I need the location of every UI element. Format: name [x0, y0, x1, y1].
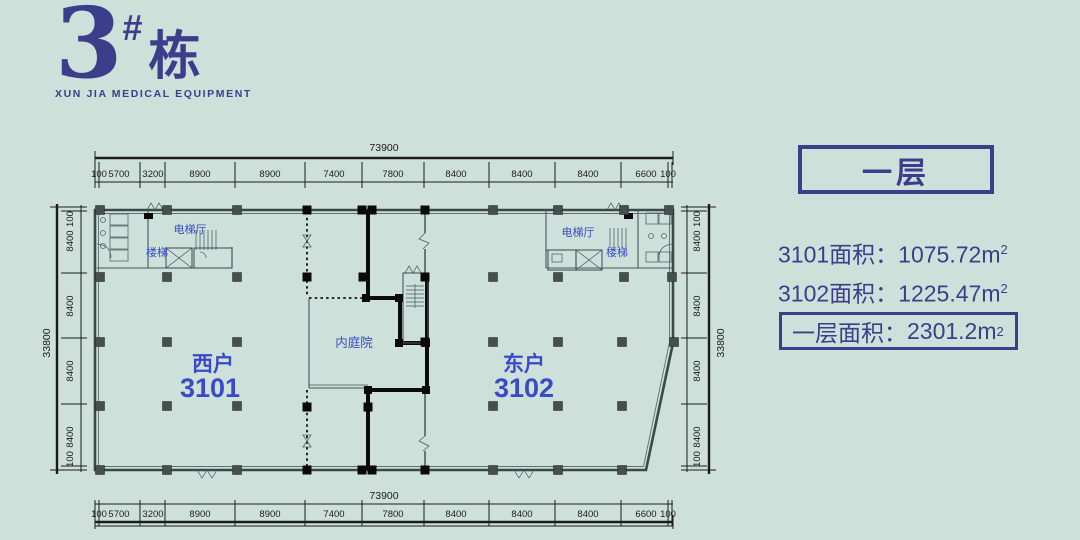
dim-top-segment: 100 — [660, 169, 676, 180]
unit-area-label: 3101面积： — [778, 242, 898, 268]
dim-top-segment: 6600 — [635, 169, 656, 180]
dim-right-segment: 8400 — [692, 426, 703, 447]
dim-left-segment: 8400 — [65, 426, 76, 447]
floorplan-page: 3 # 栋 XUN JIA MEDICAL EQUIPMENT 73900 10… — [0, 0, 1080, 540]
shaft-marker-west — [144, 213, 153, 219]
building-number: 3 — [55, 4, 121, 84]
dim-bottom-segment: 8400 — [577, 509, 598, 520]
west-unit-number: 3101 — [180, 373, 240, 403]
floor-area-box: 一层面积：2301.2m2 — [779, 312, 1018, 350]
dim-total-bottom: 73900 — [369, 490, 398, 502]
floor-area-exponent: 2 — [997, 324, 1004, 339]
building-logo: 3 # 栋 XUN JIA MEDICAL EQUIPMENT — [55, 4, 252, 100]
floor-title-box: 一层 — [798, 145, 994, 194]
dim-right-segment: 100 — [692, 451, 703, 467]
dim-bottom-segment: 5700 — [108, 509, 129, 520]
dim-bottom-segment: 7400 — [323, 509, 344, 520]
dim-top-segment: 8400 — [577, 169, 598, 180]
unit-area-list: 3101面积：1075.72m2 3102面积：1225.47m2 — [778, 233, 1008, 310]
dim-top-segment: 3200 — [142, 169, 163, 180]
unit-area-line: 3101面积：1075.72m2 — [778, 233, 1008, 272]
building-suffix: 栋 — [149, 31, 201, 83]
dim-top-segment: 8900 — [189, 169, 210, 180]
dim-bottom-segment: 100 — [91, 509, 107, 520]
floor-area-label: 一层面积： — [792, 314, 907, 348]
dim-bottom-segment: 7800 — [382, 509, 403, 520]
dim-total-top: 73900 — [369, 142, 398, 154]
east-unit-number: 3102 — [494, 373, 554, 403]
dim-top-segment: 7400 — [323, 169, 344, 180]
floor-area-value: 2301.2 — [907, 318, 977, 345]
dim-top-segment: 5700 — [108, 169, 129, 180]
dim-left-segment: 8400 — [65, 360, 76, 381]
dim-bottom-segment: 8900 — [259, 509, 280, 520]
dim-bottom-segment: 8400 — [511, 509, 532, 520]
label-stairs-east: 楼梯 — [606, 245, 628, 259]
elevator-west — [166, 248, 232, 268]
dim-top-segment: 100 — [91, 169, 107, 180]
dim-top-segment: 8400 — [445, 169, 466, 180]
door-arc-left-wall-icon — [97, 244, 111, 258]
label-elevator-hall-west: 电梯厅 — [174, 223, 207, 236]
company-subtitle: XUN JIA MEDICAL EQUIPMENT — [55, 88, 252, 100]
unit-area-unit: m — [981, 280, 1000, 306]
floor-title: 一层 — [862, 148, 930, 192]
elevator-east — [548, 250, 602, 270]
unit-area-value: 1075.72 — [898, 242, 981, 268]
dim-bottom-segment: 100 — [660, 509, 676, 520]
dim-right-segment: 8400 — [692, 230, 703, 251]
dimension-chain-bottom: 73900 100 5700 3200 8900 8900 7400 7800 … — [91, 490, 676, 529]
dim-total-right: 33800 — [715, 328, 727, 357]
unit-area-line: 3102面积：1225.47m2 — [778, 272, 1008, 311]
label-elevator-hall-east: 电梯厅 — [562, 226, 595, 239]
dim-bottom-segment: 8900 — [189, 509, 210, 520]
unit-area-unit: m — [981, 242, 1000, 268]
dim-right-segment: 8400 — [692, 360, 703, 381]
dim-right-segment: 8400 — [692, 295, 703, 316]
label-courtyard: 内庭院 — [335, 335, 373, 350]
dimension-chain-left: 33800 100 8400 8400 8400 8400 100 — [41, 204, 87, 474]
dimension-chain-right: 33800 100 8400 8400 8400 8400 100 — [681, 204, 727, 474]
dim-left-segment: 100 — [65, 211, 76, 227]
building-hash-mark: # — [123, 10, 143, 46]
dim-left-segment: 100 — [65, 451, 76, 467]
dimension-chain-top: 73900 100 5700 3200 8900 8900 7400 7800 … — [91, 142, 676, 188]
outer-walls — [95, 210, 673, 470]
unit-area-value: 1225.47 — [898, 280, 981, 306]
restroom-stalls-west — [101, 214, 129, 261]
dim-top-segment: 8900 — [259, 169, 280, 180]
unit-area-exponent: 2 — [1000, 281, 1007, 296]
column-grid — [96, 206, 679, 475]
floor-area-unit: m — [977, 318, 996, 345]
restroom-stalls-east — [646, 213, 671, 262]
dim-bottom-segment: 6600 — [635, 509, 656, 520]
dim-bottom-segment: 8400 — [445, 509, 466, 520]
dim-left-segment: 8400 — [65, 295, 76, 316]
courtyard-and-core-walls: 内庭院 — [197, 210, 534, 478]
unit-area-exponent: 2 — [1000, 242, 1007, 257]
dim-top-segment: 8400 — [511, 169, 532, 180]
unit-area-label: 3102面积： — [778, 280, 898, 306]
label-stairs-west: 楼梯 — [146, 245, 168, 259]
dim-right-segment: 100 — [692, 211, 703, 227]
stairs-east — [610, 228, 626, 248]
dim-top-segment: 7800 — [382, 169, 403, 180]
dim-total-left: 33800 — [41, 328, 53, 357]
dim-bottom-segment: 3200 — [142, 509, 163, 520]
dim-left-segment: 8400 — [65, 230, 76, 251]
